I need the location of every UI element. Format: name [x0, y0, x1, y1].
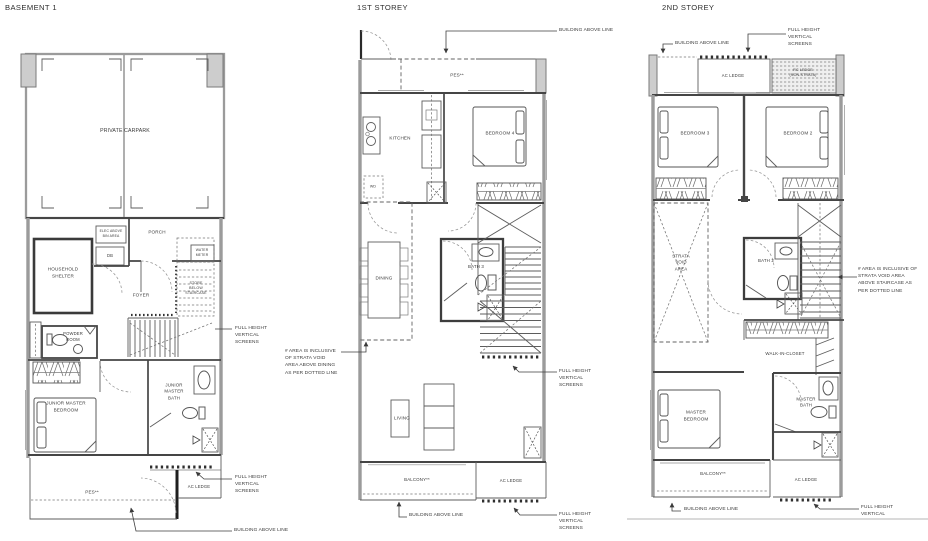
toilet-icon [778, 276, 789, 291]
annotation-building-above-basement: BUILDING ABOVE LINE [234, 527, 288, 534]
label-bath2: BATH 2 [758, 258, 774, 264]
label-master-bedroom: MASTER BEDROOM [684, 409, 709, 422]
leader-line [131, 508, 232, 531]
annotation-building-above-top-first: BUILDING ABOVE LINE [559, 27, 613, 34]
label-db: DB [107, 253, 113, 259]
vent-arrow-icon [777, 300, 784, 308]
label-powder-room: POWDER ROOM [63, 331, 83, 343]
label-living: LIVING [394, 416, 410, 423]
label-junior-master-bedroom: JUNIOR MASTER BEDROOM [46, 400, 85, 413]
label-bath3: BATH 3 [468, 264, 484, 270]
annotation-screens-bottom-second: FULL HEIGHT VERTICAL [861, 504, 893, 518]
second-storey-staircase-icon [798, 203, 841, 320]
label-water-meter: WATER METER [196, 248, 209, 258]
label-rc-ledge: RC LEDGE (NON-STRATA) [789, 68, 816, 78]
floorplan-sheet: BASEMENT 1 1ST STOREY 2ND STOREY PRIVATE… [0, 0, 928, 541]
toilet-icon [47, 334, 52, 345]
floorplan-linework [0, 0, 928, 541]
annotation-screens-mid-first: FULL HEIGHT VERTICAL SCREENS [559, 368, 591, 390]
leader-line [399, 502, 407, 517]
label-walk-in-closet: WALK-IN-CLOSET [765, 351, 804, 357]
carpark-outline-icon [21, 54, 224, 218]
leader-line [672, 503, 681, 511]
label-bedroom3: BEDROOM 3 [681, 131, 710, 138]
leader-line [341, 342, 366, 352]
leader-line [513, 366, 557, 372]
riser-shaft [30, 322, 41, 358]
label-bedroom2: BEDROOM 2 [784, 131, 813, 138]
label-wd: WD [370, 184, 376, 189]
label-dining: DINING [376, 276, 393, 283]
label-ac-ledge-basement: AC LEDGE [188, 484, 210, 490]
annotation-screens-low-first: FULL HEIGHT VERTICAL SCREENS [559, 511, 591, 533]
label-balcony-first: BALCONY** [404, 477, 430, 483]
toilet-icon [183, 408, 198, 419]
annotation-screens-low-basement: FULL HEIGHT VERTICAL SCREENS [235, 474, 267, 496]
label-junior-master-bath: JUNIOR MASTER BATH [164, 382, 183, 401]
bedroom-wardrobe-icons [656, 178, 838, 199]
label-ac-ledge-bottom-second: AC LEDGE [795, 477, 817, 483]
label-household-shelter: HOUSEHOLD SHELTER [48, 266, 78, 279]
label-foyer: FOYER [133, 293, 150, 300]
label-elec-bin: ELEC ABOVE BIN AREA [100, 229, 123, 239]
dining-set-icon [360, 202, 412, 340]
label-strata-void: STRATA VOID AREA [672, 253, 690, 272]
leader-line [196, 472, 232, 479]
label-balcony-second: BALCONY** [700, 471, 726, 477]
leader-line [814, 504, 859, 509]
sink-icon [74, 345, 83, 354]
annotation-building-above-top-second: BUILDING ABOVE LINE [675, 40, 729, 47]
basement-staircase-icon [128, 315, 212, 357]
label-porch: PORCH [148, 230, 165, 237]
vent-arrow-icon [193, 436, 200, 444]
wardrobe-icon [33, 362, 80, 383]
first-storey-plan-drawing [341, 30, 557, 517]
bath2-fixtures [744, 238, 801, 299]
label-ac-ledge-first: AC LEDGE [500, 478, 522, 484]
leader-line [514, 508, 557, 515]
toilet-icon [476, 275, 487, 291]
label-ac-ledge-top-second: AC LEDGE [722, 73, 744, 79]
bedroom4-wardrobe-icon [477, 183, 541, 200]
annotation-screens-mid-basement: FULL HEIGHT VERTICAL SCREENS [235, 325, 267, 347]
bath3-fixtures [441, 239, 503, 321]
label-pes-basement: PES** [85, 490, 99, 497]
annotation-screens-top-second: FULL HEIGHT VERTICAL SCREENS [788, 27, 820, 49]
walk-in-closet-hatch [746, 322, 834, 375]
second-storey-title: 2ND STOREY [662, 3, 714, 12]
leader-line [446, 31, 557, 53]
label-private-carpark: PRIVATE CARPARK [100, 128, 150, 136]
label-kitchen: KITCHEN [389, 136, 410, 143]
first-storey-title: 1ST STOREY [357, 3, 408, 12]
leader-line [663, 44, 673, 53]
leader-line [748, 34, 786, 52]
label-master-bath: MASTER BATH [796, 397, 815, 410]
label-store-below-staircase: STORE BELOW STAIRCASE [185, 281, 206, 297]
label-bedroom4: BEDROOM 4 [486, 131, 515, 138]
label-pes-first: PES** [450, 73, 464, 80]
annotation-strata-void-second: # AREA IS INCLUSIVE OF STRATA VOID AREA … [858, 266, 917, 295]
annotation-building-above-bottom-first: BUILDING ABOVE LINE [409, 512, 463, 519]
basement-title: BASEMENT 1 [5, 3, 57, 12]
annotation-building-above-bottom-second: BUILDING ABOVE LINE [684, 506, 738, 513]
vent-arrow-icon [814, 441, 821, 449]
annotation-strata-void-first: # AREA IS INCLUSIVE OF STRATA VOID AREA … [285, 348, 337, 377]
junior-master-bath-fixtures [148, 360, 218, 455]
